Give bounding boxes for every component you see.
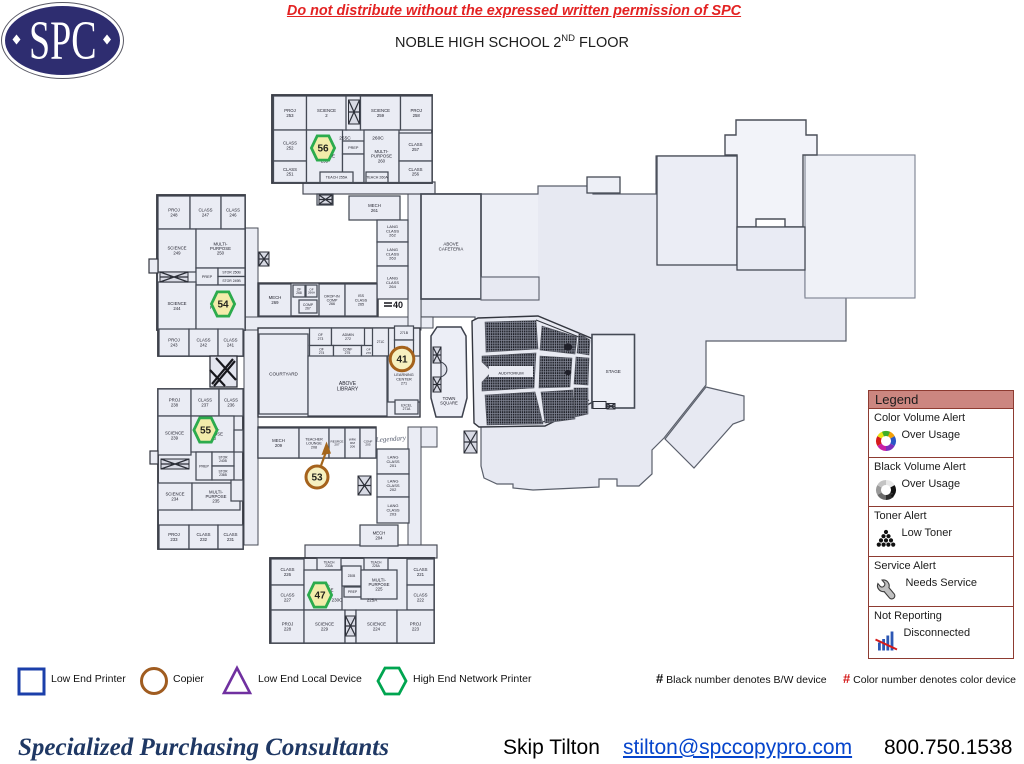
svg-text:ABOVELIBRARY: ABOVELIBRARY xyxy=(337,381,359,392)
svg-text:PREP: PREP xyxy=(348,590,358,594)
svg-text:230C: 230C xyxy=(332,598,344,603)
svg-text:PREP: PREP xyxy=(348,146,359,150)
svg-text:STOR 250B: STOR 250B xyxy=(222,270,241,274)
svg-text:OF274: OF274 xyxy=(319,347,325,355)
svg-text:PREP: PREP xyxy=(202,275,213,279)
svg-text:TEACH 255A: TEACH 255A xyxy=(326,176,348,180)
svg-text:COURTYARD: COURTYARD xyxy=(269,372,298,377)
svg-text:OF273: OF273 xyxy=(318,333,324,341)
svg-text:OF268: OF268 xyxy=(296,287,302,295)
svg-text:255C: 255C xyxy=(339,136,351,142)
svg-text:54: 54 xyxy=(217,299,229,310)
svg-text:53: 53 xyxy=(311,473,323,484)
svg-text:OF276: OF276 xyxy=(366,348,371,355)
svg-text:40: 40 xyxy=(393,300,403,310)
svg-text:41: 41 xyxy=(396,355,408,366)
svg-text:PREP: PREP xyxy=(199,464,209,468)
svg-text:STOR236B: STOR236B xyxy=(218,469,228,477)
svg-text:Legendary: Legendary xyxy=(375,434,407,444)
svg-text:STOR240B: STOR240B xyxy=(218,455,228,463)
svg-text:230B: 230B xyxy=(348,574,355,578)
svg-text:TEACH 260A: TEACH 260A xyxy=(366,176,388,180)
svg-text:47: 47 xyxy=(314,590,326,601)
svg-text:55: 55 xyxy=(200,425,212,436)
svg-text:260C: 260C xyxy=(372,136,384,142)
svg-text:AUDITORIUM: AUDITORIUM xyxy=(498,371,523,376)
svg-text:56: 56 xyxy=(317,143,329,154)
svg-text:271C: 271C xyxy=(377,340,385,344)
svg-text:225A: 225A xyxy=(367,598,378,603)
svg-text:STAGE: STAGE xyxy=(606,369,621,374)
svg-text:271B: 271B xyxy=(400,331,409,335)
svg-text:STOR 249B: STOR 249B xyxy=(222,279,241,283)
